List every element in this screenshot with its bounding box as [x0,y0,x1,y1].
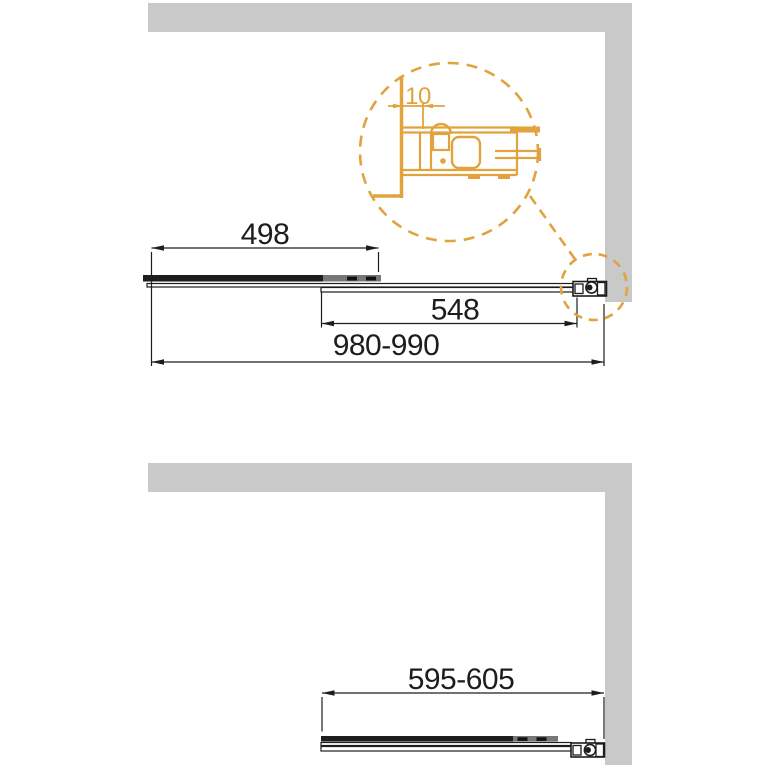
detail-leader-line [530,196,577,262]
arrowhead-right [592,359,605,364]
arrowhead-left [322,321,335,326]
foot-tab [468,175,480,179]
wall-bracket-top-view [573,279,607,297]
bracket-inner-block [573,746,581,756]
dimension-10: 10 [388,83,445,129]
bottom-plan-view: 595-605 [148,463,632,765]
screen-panels-top-view [143,275,573,292]
arrowhead-right [366,245,379,250]
wall-vertical-segment [605,463,632,765]
bracket-inner-block [575,284,583,294]
roller-mechanism-detail [373,76,540,198]
wall-bracket-bottom-view [571,740,605,758]
clip-mark [518,737,528,741]
wall-vertical-segment [605,3,632,302]
axle-dot-detail [440,158,446,164]
fixing-plate-detail [510,127,540,133]
wall-top-view [148,3,632,302]
carriage-detail [452,137,480,168]
top-rail-profile [321,743,571,746]
dimension-595-605: 595-605 [322,663,604,739]
panel-rail-profile [321,747,571,752]
arrowhead-left [152,245,165,250]
top-rail-profile [147,284,573,288]
arrowhead-left [322,690,335,695]
dimension-label-total: 980-990 [333,329,440,362]
dimension-548: 548 [322,293,578,328]
wall-bottom-view [148,463,632,765]
dimension-total-width: 980-990 [152,304,605,366]
roller-axle [585,747,591,753]
arrowhead-right [565,321,578,326]
wall-profile-detail [373,76,403,198]
fixed-panel-profile [143,275,323,282]
plan-drawing: 498 548 980-990 [0,0,784,784]
dimension-label-595-605: 595-605 [408,663,515,696]
bracket-wall-plate [596,744,604,757]
bracket-wall-plate [598,283,606,296]
dimension-label-548: 548 [431,294,480,327]
sliding-panel-profile [321,288,573,293]
technical-drawing-page: 498 548 980-990 [0,0,784,784]
wall-horizontal-segment [148,3,632,32]
wall-horizontal-segment [148,463,632,492]
top-plan-view: 498 548 980-990 [143,3,632,366]
clip-mark [347,277,357,281]
dimension-label-10: 10 [405,83,431,110]
arrowhead-right [592,690,605,695]
roller-axle [587,285,593,291]
clip-mark [537,737,547,741]
foot-tab [498,175,510,179]
clip-mark [366,277,376,281]
screen-panel-bottom-view [321,736,571,751]
frame-columns-detail [420,133,431,171]
roller-base-detail [433,134,449,150]
dimension-label-498: 498 [241,218,290,251]
arrowhead-left [152,359,165,364]
panel-profile [321,736,513,742]
